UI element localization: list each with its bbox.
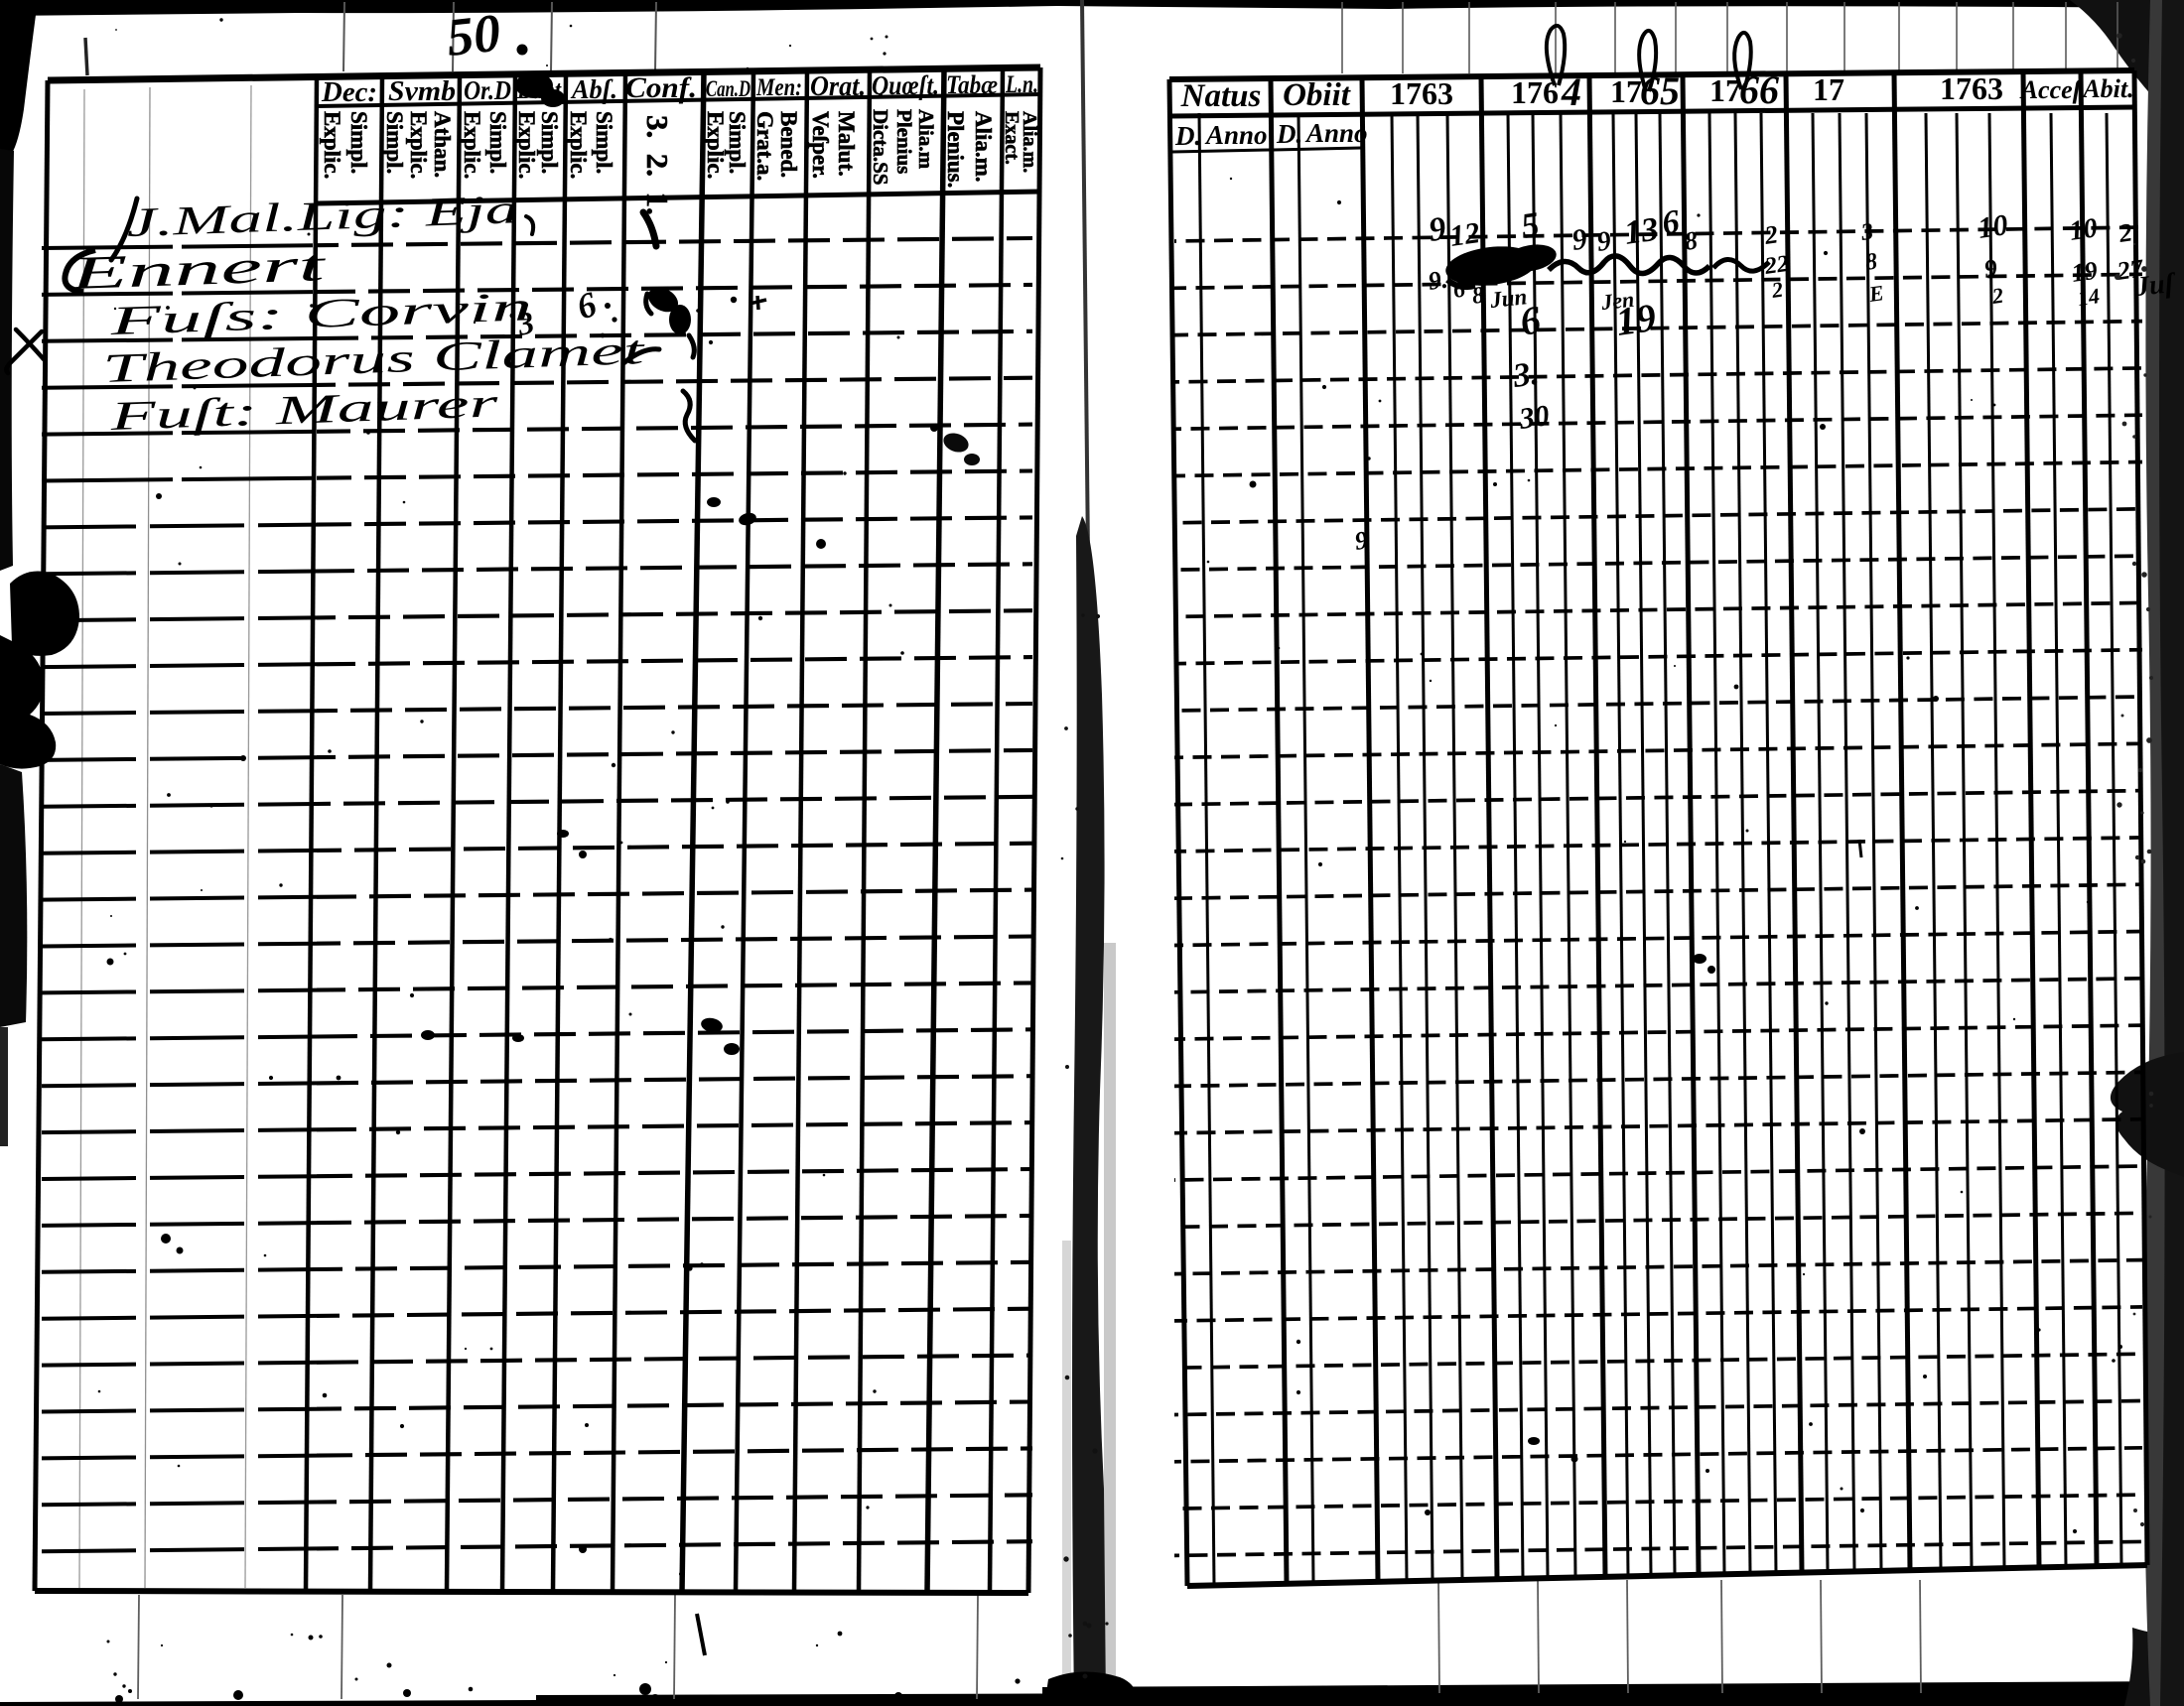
svg-text:Simpl.: Simpl.	[346, 111, 371, 174]
svg-text:1763: 1763	[1390, 75, 1453, 111]
svg-text:D.: D.	[1174, 121, 1201, 151]
svg-text:D.: D.	[1276, 119, 1302, 149]
svg-text:Alia.m.: Alia.m.	[1019, 111, 1040, 173]
svg-text:Simpl.: Simpl.	[485, 111, 510, 174]
svg-text:13: 13	[1622, 211, 1661, 252]
svg-text:Can.D: Can.D	[706, 76, 751, 101]
svg-text:10: 10	[2068, 212, 2100, 247]
svg-text:Veſper.: Veſper.	[808, 111, 833, 179]
svg-text:Juſ: Juſ	[2132, 268, 2178, 303]
svg-text:19: 19	[1613, 295, 1659, 344]
svg-text:14: 14	[2076, 283, 2101, 311]
svg-text:Explic.: Explic.	[703, 111, 728, 179]
svg-text:Anno: Anno	[1204, 120, 1268, 150]
svg-text:Alia.m: Alia.m	[914, 109, 938, 170]
svg-text:50: 50	[444, 3, 503, 67]
svg-text:Plenius.: Plenius.	[943, 111, 968, 188]
svg-text:Or.D: Or.D	[464, 75, 511, 105]
svg-text:Bened.: Bened.	[776, 111, 801, 178]
svg-text:Simpl.: Simpl.	[592, 111, 616, 174]
svg-text:Explic.: Explic.	[406, 111, 431, 179]
svg-text:Quœſt.: Quœſt.	[872, 70, 939, 100]
svg-text:Alia.m.: Alia.m.	[971, 111, 996, 183]
svg-text:Tabæ: Tabæ	[946, 70, 998, 99]
svg-text:Explic.: Explic.	[460, 111, 484, 179]
svg-text:Obiit: Obiit	[1283, 77, 1351, 113]
svg-text:Simpl.: Simpl.	[382, 111, 407, 174]
svg-text:Dec:: Dec:	[321, 76, 377, 108]
svg-text:Simpl.: Simpl.	[725, 111, 750, 174]
svg-text:Explic.: Explic.	[320, 111, 344, 179]
svg-text:L.n.: L.n.	[1005, 71, 1038, 98]
svg-text:Grat.a.: Grat.a.	[752, 111, 777, 181]
svg-text:Athan.: Athan.	[430, 111, 455, 178]
svg-text:Conf.: Conf.	[625, 71, 697, 104]
svg-text:17: 17	[1610, 73, 1642, 109]
svg-text:Natus: Natus	[1180, 78, 1262, 114]
svg-text:Men:: Men:	[755, 74, 802, 101]
svg-text:Abit.: Abit.	[2081, 74, 2133, 103]
svg-text:30: 30	[1516, 399, 1551, 436]
svg-text:Explic.: Explic.	[514, 111, 539, 179]
svg-text:Svmb: Svmb	[388, 75, 456, 107]
svg-text:Explic.: Explic.	[566, 111, 591, 179]
svg-text:3. 2. 1.: 3. 2. 1.	[640, 115, 675, 215]
svg-text:Acceſ: Acceſ	[2019, 75, 2084, 104]
svg-text:4: 4	[1561, 69, 1581, 114]
svg-text:Orat.: Orat.	[810, 70, 866, 102]
svg-text:Anno: Anno	[1304, 118, 1368, 148]
svg-text:17: 17	[1813, 71, 1844, 107]
svg-text:Malut.: Malut.	[834, 111, 859, 177]
svg-text:Dicta.SS: Dicta.SS	[869, 109, 892, 185]
svg-text:3.: 3.	[1510, 355, 1541, 395]
svg-text:Abſ.: Abſ.	[570, 74, 617, 104]
svg-text:12: 12	[1447, 216, 1481, 253]
svg-text:Simpl.: Simpl.	[537, 111, 562, 174]
svg-text:Plenius: Plenius	[892, 109, 916, 174]
svg-text:10: 10	[1976, 208, 2009, 245]
svg-text:66: 66	[1739, 67, 1779, 112]
svg-text:1763: 1763	[1940, 70, 2003, 106]
